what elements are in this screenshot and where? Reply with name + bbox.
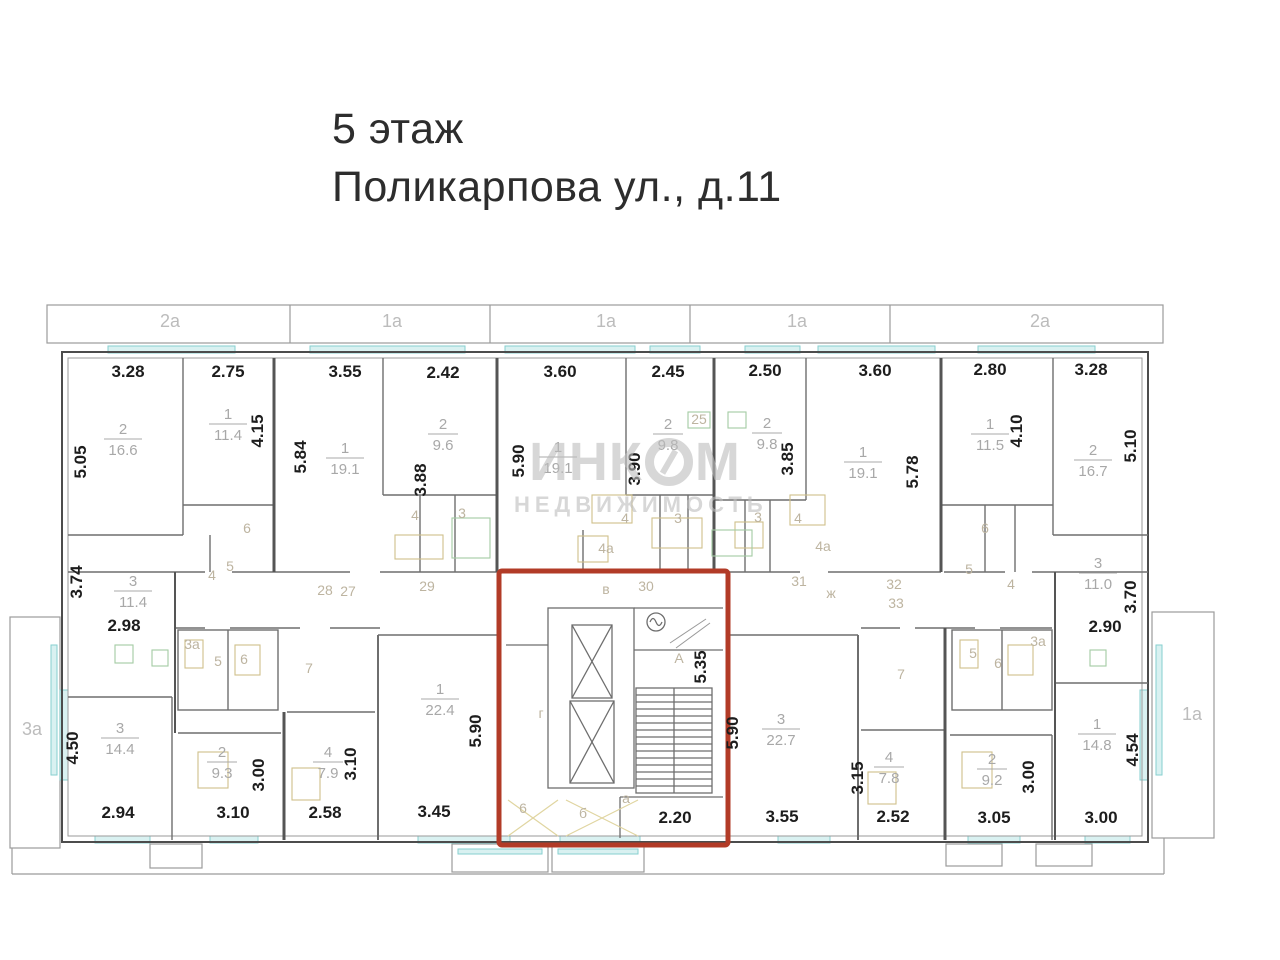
unit-label: 6 [240, 651, 248, 667]
dimension-label: 2.80 [973, 360, 1006, 379]
room-area-value: 16.6 [108, 442, 137, 459]
unit-label: 7 [897, 666, 905, 682]
dimension-label: 3.85 [778, 442, 797, 475]
room-number-label: 1 [341, 440, 349, 457]
room-area-value: 9.3 [212, 765, 233, 782]
dimension-label: 3.55 [765, 807, 798, 826]
unit-label: 6 [519, 800, 527, 816]
room-area-labels: 216.6111.4119.129.6119.129.829.8119.1111… [101, 406, 1117, 789]
unit-label: 6 [994, 655, 1002, 671]
unit-label: 3а [1030, 633, 1046, 649]
dimension-label: 3.10 [341, 747, 360, 780]
dimension-label: 3.88 [411, 463, 430, 496]
dimension-label: 3.28 [1074, 360, 1107, 379]
unit-label: а [622, 790, 630, 806]
stairwell-hatch [508, 800, 638, 836]
dimension-label: 4.10 [1007, 414, 1026, 447]
unit-label: 4а [815, 538, 831, 554]
dimension-label: 3.00 [1084, 808, 1117, 827]
unit-label: 5 [969, 645, 977, 661]
balcony-label: 1а [787, 311, 808, 331]
dimension-label: 5.90 [509, 444, 528, 477]
room-number-label: 1 [436, 681, 444, 698]
room-number-label: 4 [885, 749, 893, 766]
room-number-label: 1 [1093, 716, 1101, 733]
dimension-label: 2.75 [211, 362, 244, 381]
dimension-label: 2.42 [426, 363, 459, 382]
stairs [636, 688, 712, 793]
unit-label: 32 [886, 576, 902, 592]
dimension-label: 5.35 [691, 650, 710, 683]
unit-label: 4 [794, 510, 802, 526]
unit-label: в [602, 581, 609, 597]
balcony-label: 1а [382, 311, 403, 331]
unit-label: г [538, 705, 543, 721]
balcony-label: 2а [1030, 311, 1051, 331]
room-area-value: 7.8 [879, 770, 900, 787]
floorplan-drawing: 3.282.753.552.423.602.452.503.602.803.28… [0, 0, 1280, 960]
room-number-label: 2 [664, 416, 672, 433]
unit-label: 25 [691, 411, 707, 427]
room-area-value: 14.8 [1082, 737, 1111, 754]
room-area-value: 9.8 [658, 437, 679, 454]
unit-label: 3 [754, 509, 762, 525]
dimension-label: 3.70 [1121, 580, 1140, 613]
dimension-label: 3.55 [328, 362, 361, 381]
dimension-label: 3.60 [543, 362, 576, 381]
unit-label: 28 [317, 582, 333, 598]
room-number-label: 2 [119, 421, 127, 438]
dimension-label: 4.50 [63, 731, 82, 764]
dimension-label: 2.90 [1088, 617, 1121, 636]
room-area-value: 9.6 [433, 437, 454, 454]
dimension-label: 3.74 [67, 565, 86, 599]
room-number-label: 3 [777, 711, 785, 728]
unit-label: 5 [214, 653, 222, 669]
unit-label: 5 [226, 558, 234, 574]
dimension-label: 2.50 [748, 361, 781, 380]
dimension-label: 3.00 [249, 758, 268, 791]
room-number-label: 3 [129, 573, 137, 590]
balcony-label: 1а [1182, 704, 1203, 724]
room-area-value: 9.2 [982, 772, 1003, 789]
dimension-label: 3.05 [977, 808, 1010, 827]
unit-label: 6 [981, 520, 989, 536]
unit-label: 6 [243, 520, 251, 536]
unit-label: 29 [419, 578, 435, 594]
unit-label: 4а [598, 540, 614, 556]
room-area-value: 11.4 [214, 427, 242, 444]
room-number-label: 4 [324, 744, 332, 761]
dimension-label: 5.90 [466, 714, 485, 747]
balcony-label: 1а [596, 311, 617, 331]
unit-label: А [674, 650, 684, 666]
room-number-label: 3 [1094, 555, 1102, 572]
unit-label: 3 [458, 505, 466, 521]
dimension-label: 2.98 [107, 616, 140, 635]
unit-label: 33 [888, 595, 904, 611]
room-number-label: 2 [763, 415, 771, 432]
dimension-label: 3.00 [1019, 760, 1038, 793]
room-number-label: 1 [986, 416, 994, 433]
unit-label: 30 [638, 578, 654, 594]
dimension-label: 5.05 [71, 445, 90, 478]
unit-label: 31 [791, 573, 807, 589]
room-area-value: 14.4 [105, 741, 134, 758]
room-number-label: 1 [224, 406, 232, 423]
dimension-label: 3.45 [417, 802, 450, 821]
room-area-value: 22.4 [425, 702, 454, 719]
unit-label: б [579, 805, 587, 821]
dimension-label: 2.94 [101, 803, 135, 822]
balcony-label: 3а [22, 719, 43, 739]
room-area-value: 11.5 [976, 437, 1004, 454]
room-number-label: 1 [859, 444, 867, 461]
unit-label: 7 [305, 660, 313, 676]
room-number-label: 1 [554, 439, 562, 456]
room-area-value: 9.8 [757, 436, 778, 453]
dimension-label: 2.45 [651, 362, 684, 381]
stairwell [506, 608, 723, 838]
unit-label: 4 [621, 510, 629, 526]
room-number-label: 3 [116, 720, 124, 737]
dimension-label: 5.90 [723, 716, 742, 749]
room-area-value: 19.1 [330, 461, 359, 478]
dimension-label: 5.78 [903, 455, 922, 488]
room-area-value: 22.7 [766, 732, 795, 749]
dimension-label: 2.58 [308, 803, 341, 822]
room-number-label: 2 [439, 416, 447, 433]
unit-label: ж [826, 585, 836, 601]
unit-label: 4 [1007, 576, 1015, 592]
dimension-label: 2.20 [658, 808, 691, 827]
unit-label: 4 [208, 567, 216, 583]
room-area-value: 19.1 [848, 465, 877, 482]
room-area-value: 19.1 [543, 460, 572, 477]
unit-label: 4 [411, 507, 419, 523]
dimension-label: 3.15 [848, 761, 867, 794]
room-number-label: 2 [218, 744, 226, 761]
room-area-value: 11.0 [1084, 576, 1112, 593]
dimension-label: 5.10 [1121, 429, 1140, 462]
dimension-label: 4.54 [1123, 733, 1142, 767]
unit-label: 5 [965, 561, 973, 577]
room-number-label: 2 [988, 751, 996, 768]
balcony-label: 2а [160, 311, 181, 331]
room-area-value: 16.7 [1078, 463, 1107, 480]
room-number-label: 2 [1089, 442, 1097, 459]
dimension-label: 3.90 [625, 452, 644, 485]
dimension-label: 4.15 [248, 414, 267, 447]
dimension-label: 2.52 [876, 807, 909, 826]
unit-label: 3а [184, 636, 200, 652]
dimension-label: 3.10 [216, 803, 249, 822]
room-area-value: 7.9 [318, 765, 339, 782]
floorplan-page: 5 этаж Поликарпова ул., д.11 ИНК М НЕДВИ… [0, 0, 1280, 960]
dimension-label: 3.28 [111, 362, 144, 381]
unit-label: 3 [674, 510, 682, 526]
room-area-value: 11.4 [119, 594, 147, 611]
dimension-label: 5.84 [291, 440, 310, 474]
unit-label: 27 [340, 583, 356, 599]
dimension-label: 3.60 [858, 361, 891, 380]
